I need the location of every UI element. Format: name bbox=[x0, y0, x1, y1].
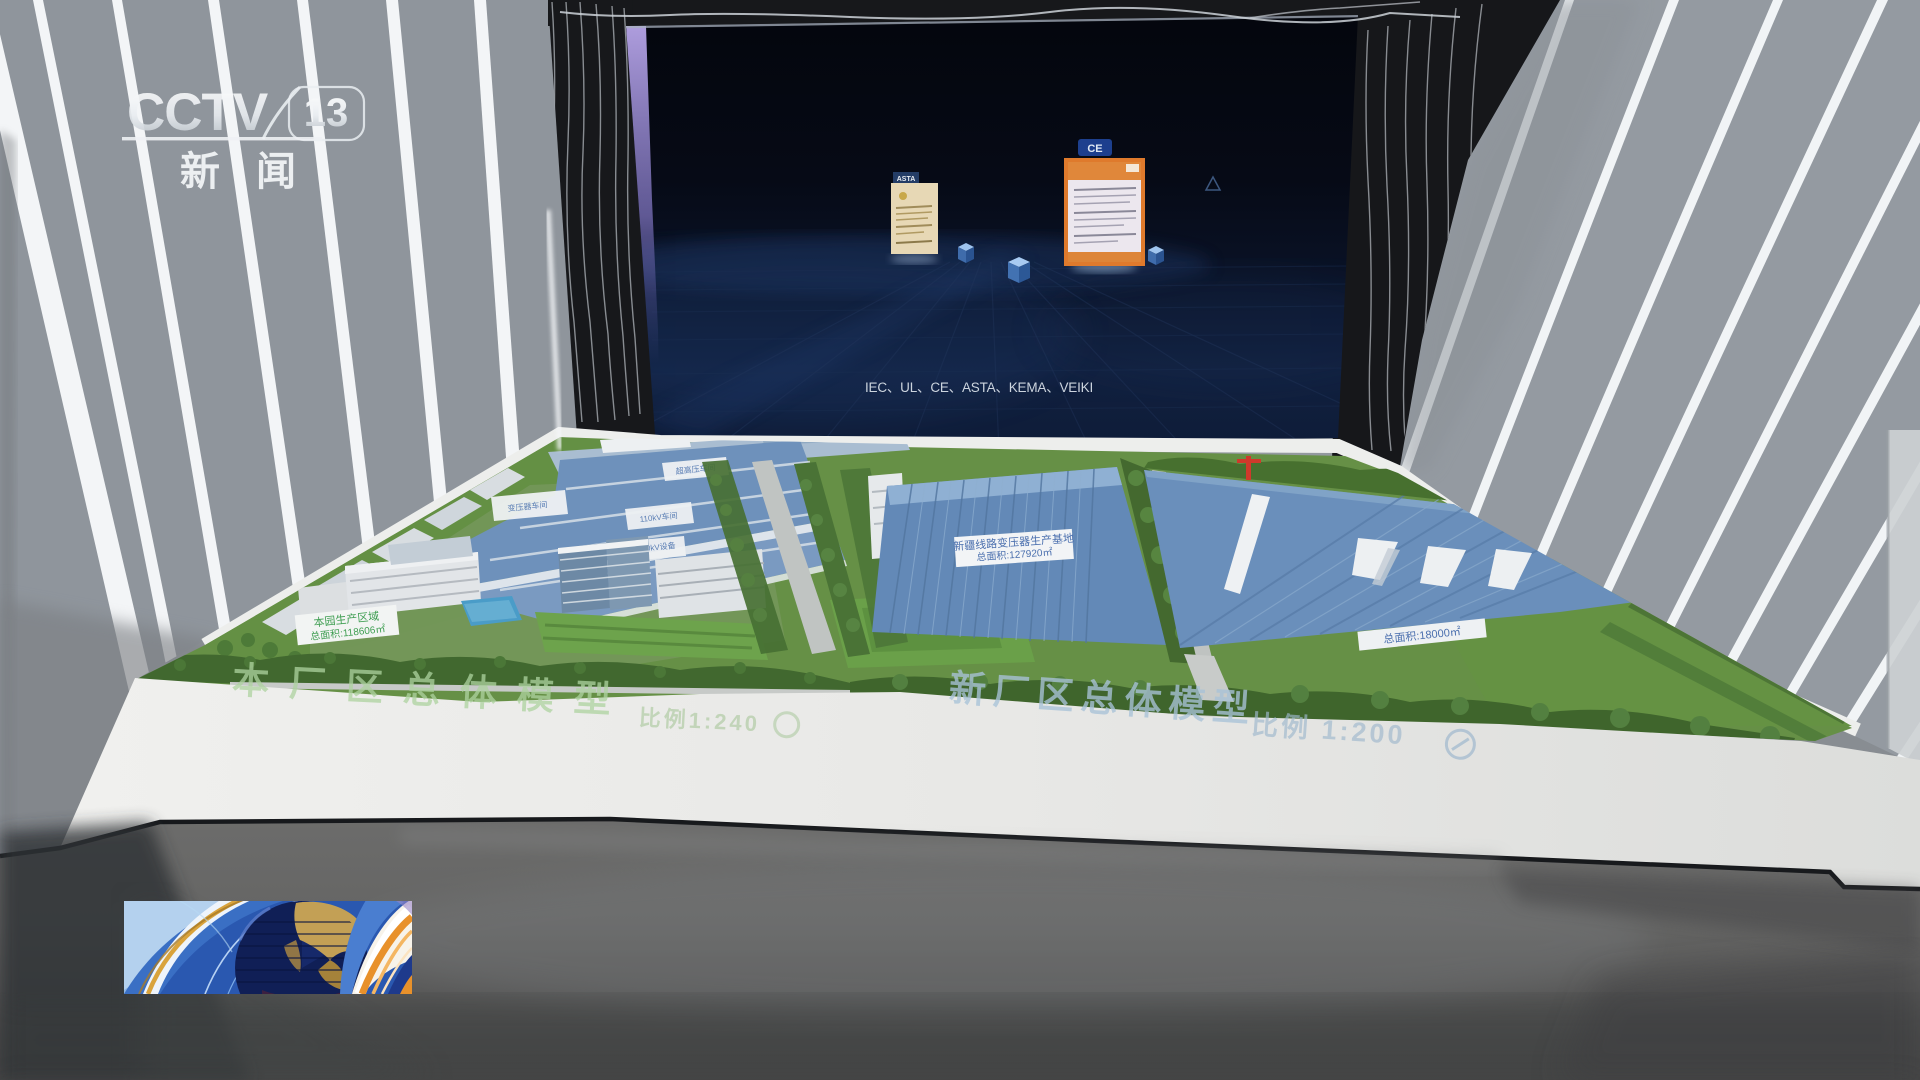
svg-text:CCTV: CCTV bbox=[127, 83, 268, 142]
svg-text:IEC、UL、CE、ASTA、KEMA、VEIKI: IEC、UL、CE、ASTA、KEMA、VEIKI bbox=[865, 380, 1093, 395]
svg-text:ASTA: ASTA bbox=[897, 176, 916, 183]
svg-text:新闻: 新闻 bbox=[180, 150, 332, 194]
svg-text:13: 13 bbox=[304, 91, 349, 135]
svg-text:CE: CE bbox=[1087, 143, 1102, 155]
